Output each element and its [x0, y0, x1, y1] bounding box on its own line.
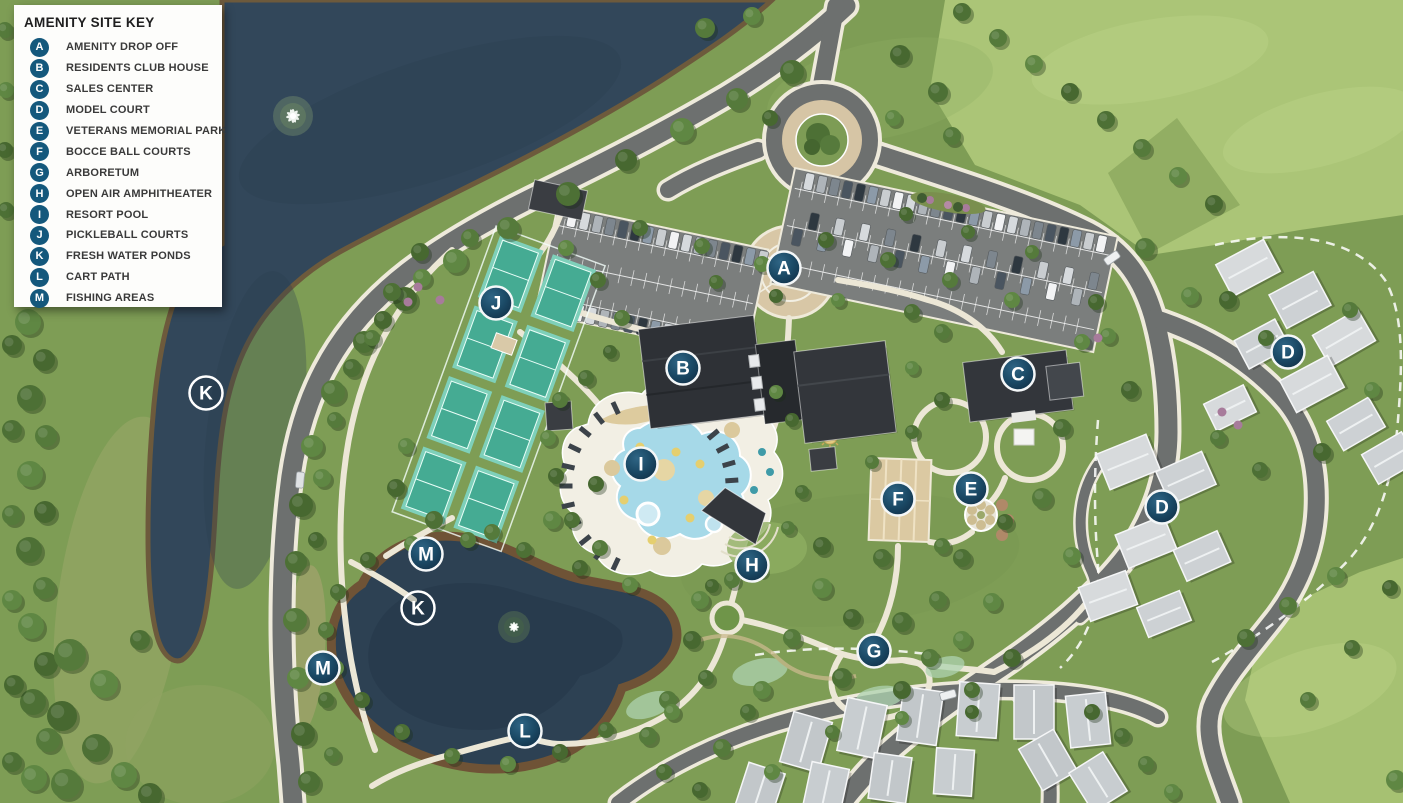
legend-badge-D: D [30, 101, 49, 120]
svg-text:K: K [199, 384, 213, 405]
garden-circle [712, 603, 742, 633]
legend-label: BOCCE BALL COURTS [66, 146, 191, 158]
legend-badge-J: J [30, 226, 49, 245]
legend-badge-E: E [30, 122, 49, 141]
pond-fountain [498, 611, 530, 643]
legend-item-E: EVETERANS MEMORIAL PARK [24, 121, 216, 142]
legend-badge-L: L [30, 268, 49, 287]
map-marker-I: I [625, 448, 658, 481]
legend-badge-M: M [30, 289, 49, 308]
legend-list: AAMENITY DROP OFFBRESIDENTS CLUB HOUSECS… [24, 37, 216, 309]
legend-item-H: HOPEN AIR AMPHITHEATER [24, 183, 216, 204]
legend-item-I: IRESORT POOL [24, 204, 216, 225]
map-marker-G: G [858, 635, 891, 668]
map-marker-J: J [480, 287, 513, 320]
svg-text:I: I [638, 455, 643, 476]
legend-label: RESIDENTS CLUB HOUSE [66, 62, 209, 74]
legend-label: PICKLEBALL COURTS [66, 229, 188, 241]
legend-title: AMENITY SITE KEY [24, 15, 216, 30]
gazebo [1014, 429, 1034, 445]
svg-text:H: H [745, 556, 759, 577]
legend-label: SALES CENTER [66, 83, 153, 95]
svg-text:E: E [965, 480, 978, 501]
legend-label: FRESH WATER PONDS [66, 250, 191, 262]
amenity-site-key-panel: AMENITY SITE KEY AAMENITY DROP OFFBRESID… [14, 5, 222, 307]
legend-label: CART PATH [66, 271, 130, 283]
map-marker-K: K [402, 592, 435, 625]
svg-text:J: J [491, 294, 502, 315]
map-marker-A: A [768, 252, 801, 285]
svg-text:G: G [867, 642, 882, 663]
svg-text:B: B [676, 359, 690, 380]
legend-badge-B: B [30, 59, 49, 78]
svg-text:D: D [1155, 498, 1169, 519]
map-marker-C: C [1002, 358, 1035, 391]
svg-text:L: L [519, 722, 531, 743]
legend-label: MODEL COURT [66, 104, 150, 116]
legend-item-D: DMODEL COURT [24, 100, 216, 121]
svg-text:D: D [1281, 343, 1295, 364]
svg-text:K: K [411, 599, 425, 620]
legend-label: RESORT POOL [66, 209, 148, 221]
legend-item-J: JPICKLEBALL COURTS [24, 225, 216, 246]
legend-badge-K: K [30, 247, 49, 266]
map-marker-F: F [882, 483, 915, 516]
legend-label: ARBORETUM [66, 167, 139, 179]
legend-badge-F: F [30, 142, 49, 161]
legend-item-G: GARBORETUM [24, 162, 216, 183]
legend-label: VETERANS MEMORIAL PARK [66, 125, 226, 137]
legend-item-C: CSALES CENTER [24, 79, 216, 100]
map-marker-E: E [955, 473, 988, 506]
map-marker-K: K [190, 377, 223, 410]
legend-badge-I: I [30, 205, 49, 224]
svg-text:C: C [1011, 365, 1025, 386]
svg-text:M: M [315, 659, 331, 680]
legend-badge-C: C [30, 80, 49, 99]
model-home [1065, 692, 1114, 751]
legend-label: AMENITY DROP OFF [66, 41, 178, 53]
legend-item-K: KFRESH WATER PONDS [24, 246, 216, 267]
legend-label: FISHING AREAS [66, 292, 154, 304]
model-home [933, 748, 977, 800]
legend-item-F: FBOCCE BALL COURTS [24, 141, 216, 162]
map-marker-D: D [1272, 336, 1305, 369]
model-home [868, 753, 915, 803]
svg-text:M: M [418, 545, 434, 566]
svg-text:A: A [777, 259, 791, 280]
svg-text:F: F [892, 490, 904, 511]
map-marker-H: H [736, 549, 769, 582]
lake-fountain [273, 96, 313, 136]
map-stage: ABCDDEFGHIJKKLMM AMENITY SITE KEY AAMENI… [0, 0, 1403, 803]
map-marker-L: L [509, 715, 542, 748]
map-marker-B: B [667, 352, 700, 385]
map-marker-D: D [1146, 491, 1179, 524]
legend-badge-H: H [30, 184, 49, 203]
map-marker-M: M [410, 538, 443, 571]
legend-item-M: MFISHING AREAS [24, 288, 216, 309]
legend-badge-G: G [30, 163, 49, 182]
legend-item-B: BRESIDENTS CLUB HOUSE [24, 58, 216, 79]
map-marker-M: M [307, 652, 340, 685]
legend-label: OPEN AIR AMPHITHEATER [66, 188, 212, 200]
pool-equipment-building [809, 447, 837, 472]
legend-badge-A: A [30, 38, 49, 57]
legend-item-L: LCART PATH [24, 267, 216, 288]
legend-item-A: AAMENITY DROP OFF [24, 37, 216, 58]
